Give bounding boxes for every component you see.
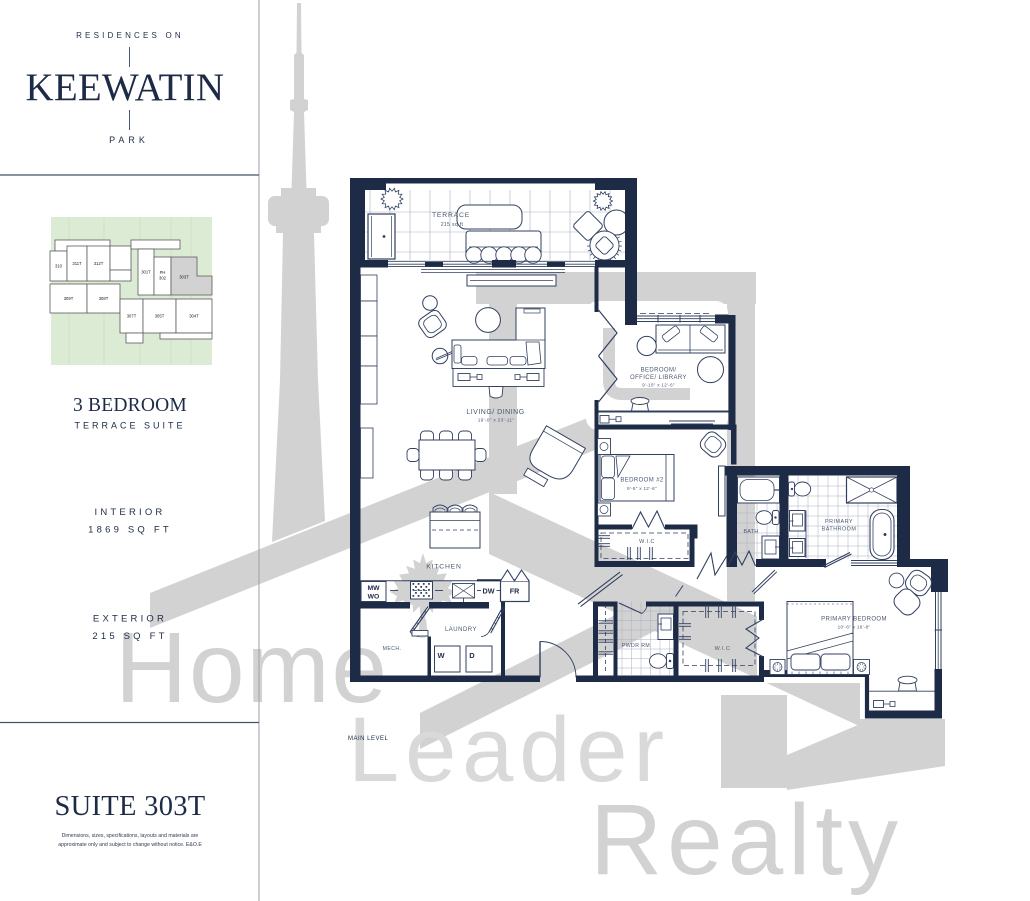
svg-text:W: W xyxy=(437,651,445,660)
svg-text:PRIMARY BEDROOM: PRIMARY BEDROOM xyxy=(821,617,887,623)
svg-text:10'-6" x 16'-8": 10'-6" x 16'-8" xyxy=(838,625,871,630)
svg-text:302: 302 xyxy=(159,276,167,281)
svg-text:TERRACE SUITE: TERRACE SUITE xyxy=(74,421,185,431)
svg-text:310: 310 xyxy=(55,264,63,269)
svg-text:LIVING/ DINING: LIVING/ DINING xyxy=(466,409,524,416)
svg-text:BEDROOM #2: BEDROOM #2 xyxy=(620,478,664,484)
svg-text:INTERIOR: INTERIOR xyxy=(95,507,166,518)
svg-text:RESIDENCES ON: RESIDENCES ON xyxy=(76,31,184,40)
svg-text:PWDR RM: PWDR RM xyxy=(622,643,650,649)
svg-text:MECH.: MECH. xyxy=(383,646,402,652)
svg-text:BATHROOM: BATHROOM xyxy=(822,527,857,533)
svg-text:307T: 307T xyxy=(127,314,137,319)
svg-text:215 sq ft: 215 sq ft xyxy=(441,222,464,228)
svg-text:D: D xyxy=(469,651,475,660)
svg-text:KITCHEN: KITCHEN xyxy=(426,564,461,571)
svg-text:19'-0" x 23'-11": 19'-0" x 23'-11" xyxy=(478,418,515,424)
svg-text:BATH: BATH xyxy=(743,529,758,535)
svg-text:312T: 312T xyxy=(94,261,104,266)
svg-text:301T: 301T xyxy=(141,270,151,275)
svg-text:MAIN LEVEL: MAIN LEVEL xyxy=(348,736,389,742)
svg-text:Realty: Realty xyxy=(590,784,898,896)
svg-text:Home: Home xyxy=(115,612,387,724)
svg-text:311T: 311T xyxy=(72,261,82,266)
svg-text:MW: MW xyxy=(367,585,380,592)
svg-text:305T: 305T xyxy=(155,314,165,319)
svg-text:OFFICE/ LIBRARY: OFFICE/ LIBRARY xyxy=(630,375,687,381)
svg-text:WO: WO xyxy=(368,594,380,601)
svg-text:304T: 304T xyxy=(189,314,199,319)
svg-text:EXTERIOR: EXTERIOR xyxy=(93,614,167,625)
svg-text:309T: 309T xyxy=(64,296,74,301)
svg-text:SUITE 303T: SUITE 303T xyxy=(54,791,205,822)
svg-text:9'-5" x 12'-6": 9'-5" x 12'-6" xyxy=(627,486,657,491)
svg-text:PARK: PARK xyxy=(109,135,149,145)
svg-text:PRIMARY: PRIMARY xyxy=(825,519,853,525)
svg-text:PH: PH xyxy=(160,270,166,275)
svg-text:BEDROOM/: BEDROOM/ xyxy=(641,368,677,374)
svg-text:DW: DW xyxy=(483,587,495,596)
svg-text:KEEWATIN: KEEWATIN xyxy=(26,66,233,109)
svg-text:3 BEDROOM: 3 BEDROOM xyxy=(73,395,187,416)
svg-text:FR: FR xyxy=(510,587,520,596)
svg-text:1869 SQ FT: 1869 SQ FT xyxy=(88,525,172,536)
svg-text:W.I.C: W.I.C xyxy=(715,646,731,652)
svg-text:LAUNDRY: LAUNDRY xyxy=(445,627,477,633)
svg-text:TERRACE: TERRACE xyxy=(432,212,470,219)
svg-text:308T: 308T xyxy=(99,296,109,301)
svg-text:Dimensions, sizes, specificati: Dimensions, sizes, specifications, layou… xyxy=(62,833,199,839)
svg-text:303T: 303T xyxy=(179,275,189,280)
svg-text:W.I.C: W.I.C xyxy=(639,539,655,545)
svg-text:9'-10" x 12'-6": 9'-10" x 12'-6" xyxy=(642,383,675,388)
svg-text:215 SQ FT: 215 SQ FT xyxy=(92,631,167,642)
svg-text:approximate only and subject t: approximate only and subject to change w… xyxy=(58,842,202,848)
